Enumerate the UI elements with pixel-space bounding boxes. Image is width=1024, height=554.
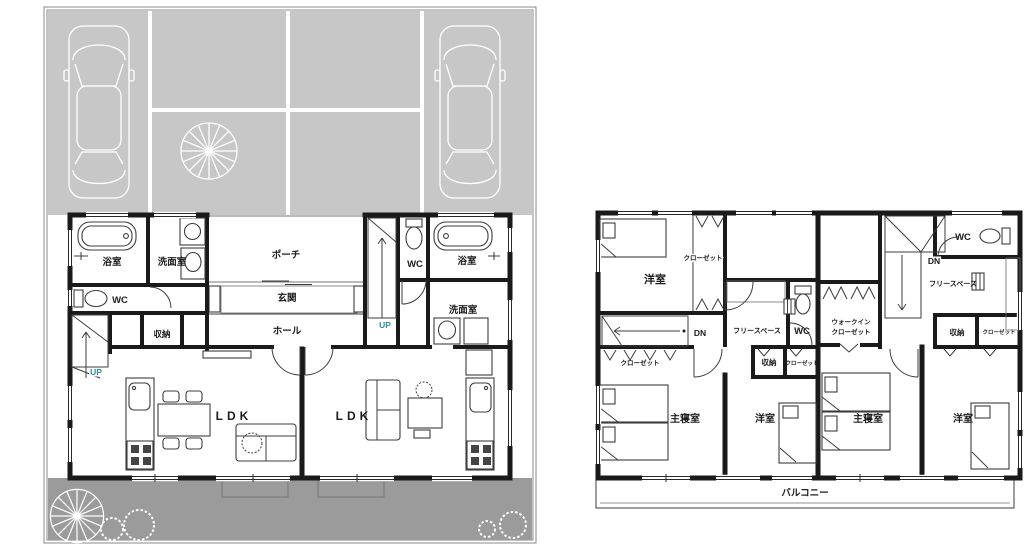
room-label-balcony: バルコニー bbox=[781, 487, 828, 499]
room-label-wc-right-2f: WC bbox=[955, 232, 971, 243]
room-label-master-right: 主寝室 bbox=[853, 412, 883, 425]
room-label-ldk-left: LDK bbox=[216, 409, 253, 423]
tv-board bbox=[203, 351, 251, 358]
room-label-storage-left: 収納 bbox=[153, 329, 170, 339]
room-label-bedroom-right: 洋室 bbox=[953, 412, 973, 425]
room-label-genkan: 玄関 bbox=[277, 292, 296, 304]
parking-area bbox=[48, 11, 532, 215]
room-label-walkin-2: クローゼット bbox=[832, 327, 871, 336]
room-label-free-space-right: フリースペース bbox=[929, 280, 977, 288]
room-label-closet-right: クローゼット bbox=[982, 328, 1015, 336]
first-floor-plan: 浴室 洗面室 ポーチ WC 玄関 収納 ホール UP UP WC 浴室 洗面室 … bbox=[44, 7, 536, 543]
room-label-closet-top-left: クローゼット bbox=[684, 253, 723, 262]
stairs-label-dn-left: DN bbox=[694, 328, 706, 338]
room-label-ldk-right: LDK bbox=[336, 409, 373, 423]
sink-icon bbox=[434, 318, 460, 344]
bed-icon bbox=[822, 373, 890, 411]
room-label-wash-left: 洗面室 bbox=[158, 256, 187, 268]
kitchen-counter-left bbox=[126, 378, 154, 470]
bed-icon bbox=[600, 423, 668, 460]
bed-icon bbox=[971, 403, 1009, 469]
room-label-walkin-1: ウォークイン bbox=[832, 317, 872, 326]
tree-icon bbox=[50, 489, 103, 542]
toilet-icon bbox=[980, 228, 1010, 244]
toilet-icon bbox=[795, 286, 811, 314]
bed-icon bbox=[600, 385, 668, 422]
room-label-closet-mid-right: クローゼット bbox=[785, 359, 818, 367]
kitchen-counter-right bbox=[466, 350, 494, 470]
room-label-bedroom-mid-left: 洋室 bbox=[755, 412, 775, 425]
tree-icon bbox=[181, 123, 237, 179]
second-floor-plan: 洋室 クローゼット DN フリースペース WC ウォークイン クローゼット DN… bbox=[595, 210, 1023, 508]
toilet-icon bbox=[406, 219, 422, 249]
room-label-storage-right: 収納 bbox=[950, 327, 965, 337]
room-label-storage-mid: 収納 bbox=[762, 357, 777, 367]
room-label-bath-left: 浴室 bbox=[102, 256, 122, 268]
room-label-hall: ホール bbox=[273, 326, 302, 337]
bed-icon bbox=[779, 403, 816, 463]
floorplan-canvas: 浴室 洗面室 ポーチ WC 玄関 収納 ホール UP UP WC 浴室 洗面室 … bbox=[0, 0, 1024, 554]
garden-area bbox=[48, 478, 532, 543]
stairs-label-up-left: UP bbox=[90, 367, 102, 377]
bed-icon bbox=[600, 219, 666, 257]
room-label-porch: ポーチ bbox=[272, 249, 301, 261]
room-label-closet-mid-left: クローゼット bbox=[621, 358, 660, 367]
toilet-icon bbox=[74, 290, 107, 307]
room-label-wc-left-2f: WC bbox=[794, 326, 810, 337]
washing-machine-icon bbox=[464, 318, 488, 344]
washing-machine-icon bbox=[180, 218, 205, 245]
stairs-label-dn-right: DN bbox=[928, 256, 940, 266]
sofa-left bbox=[236, 424, 296, 461]
room-label-wash-right: 洗面室 bbox=[449, 304, 478, 316]
room-label-wc-left: WC bbox=[112, 295, 128, 306]
room-label-bath-right: 浴室 bbox=[457, 255, 477, 267]
floorplan-page: 浴室 洗面室 ポーチ WC 玄関 収納 ホール UP UP WC 浴室 洗面室 … bbox=[0, 0, 1024, 554]
room-label-master-left: 主寝室 bbox=[670, 412, 700, 425]
room-label-wc-right: WC bbox=[407, 259, 423, 270]
room-label-bedroom-top-left: 洋室 bbox=[644, 272, 666, 286]
room-label-free-space-left: フリースペース bbox=[733, 327, 781, 335]
stairs-label-up-right: UP bbox=[379, 320, 391, 330]
